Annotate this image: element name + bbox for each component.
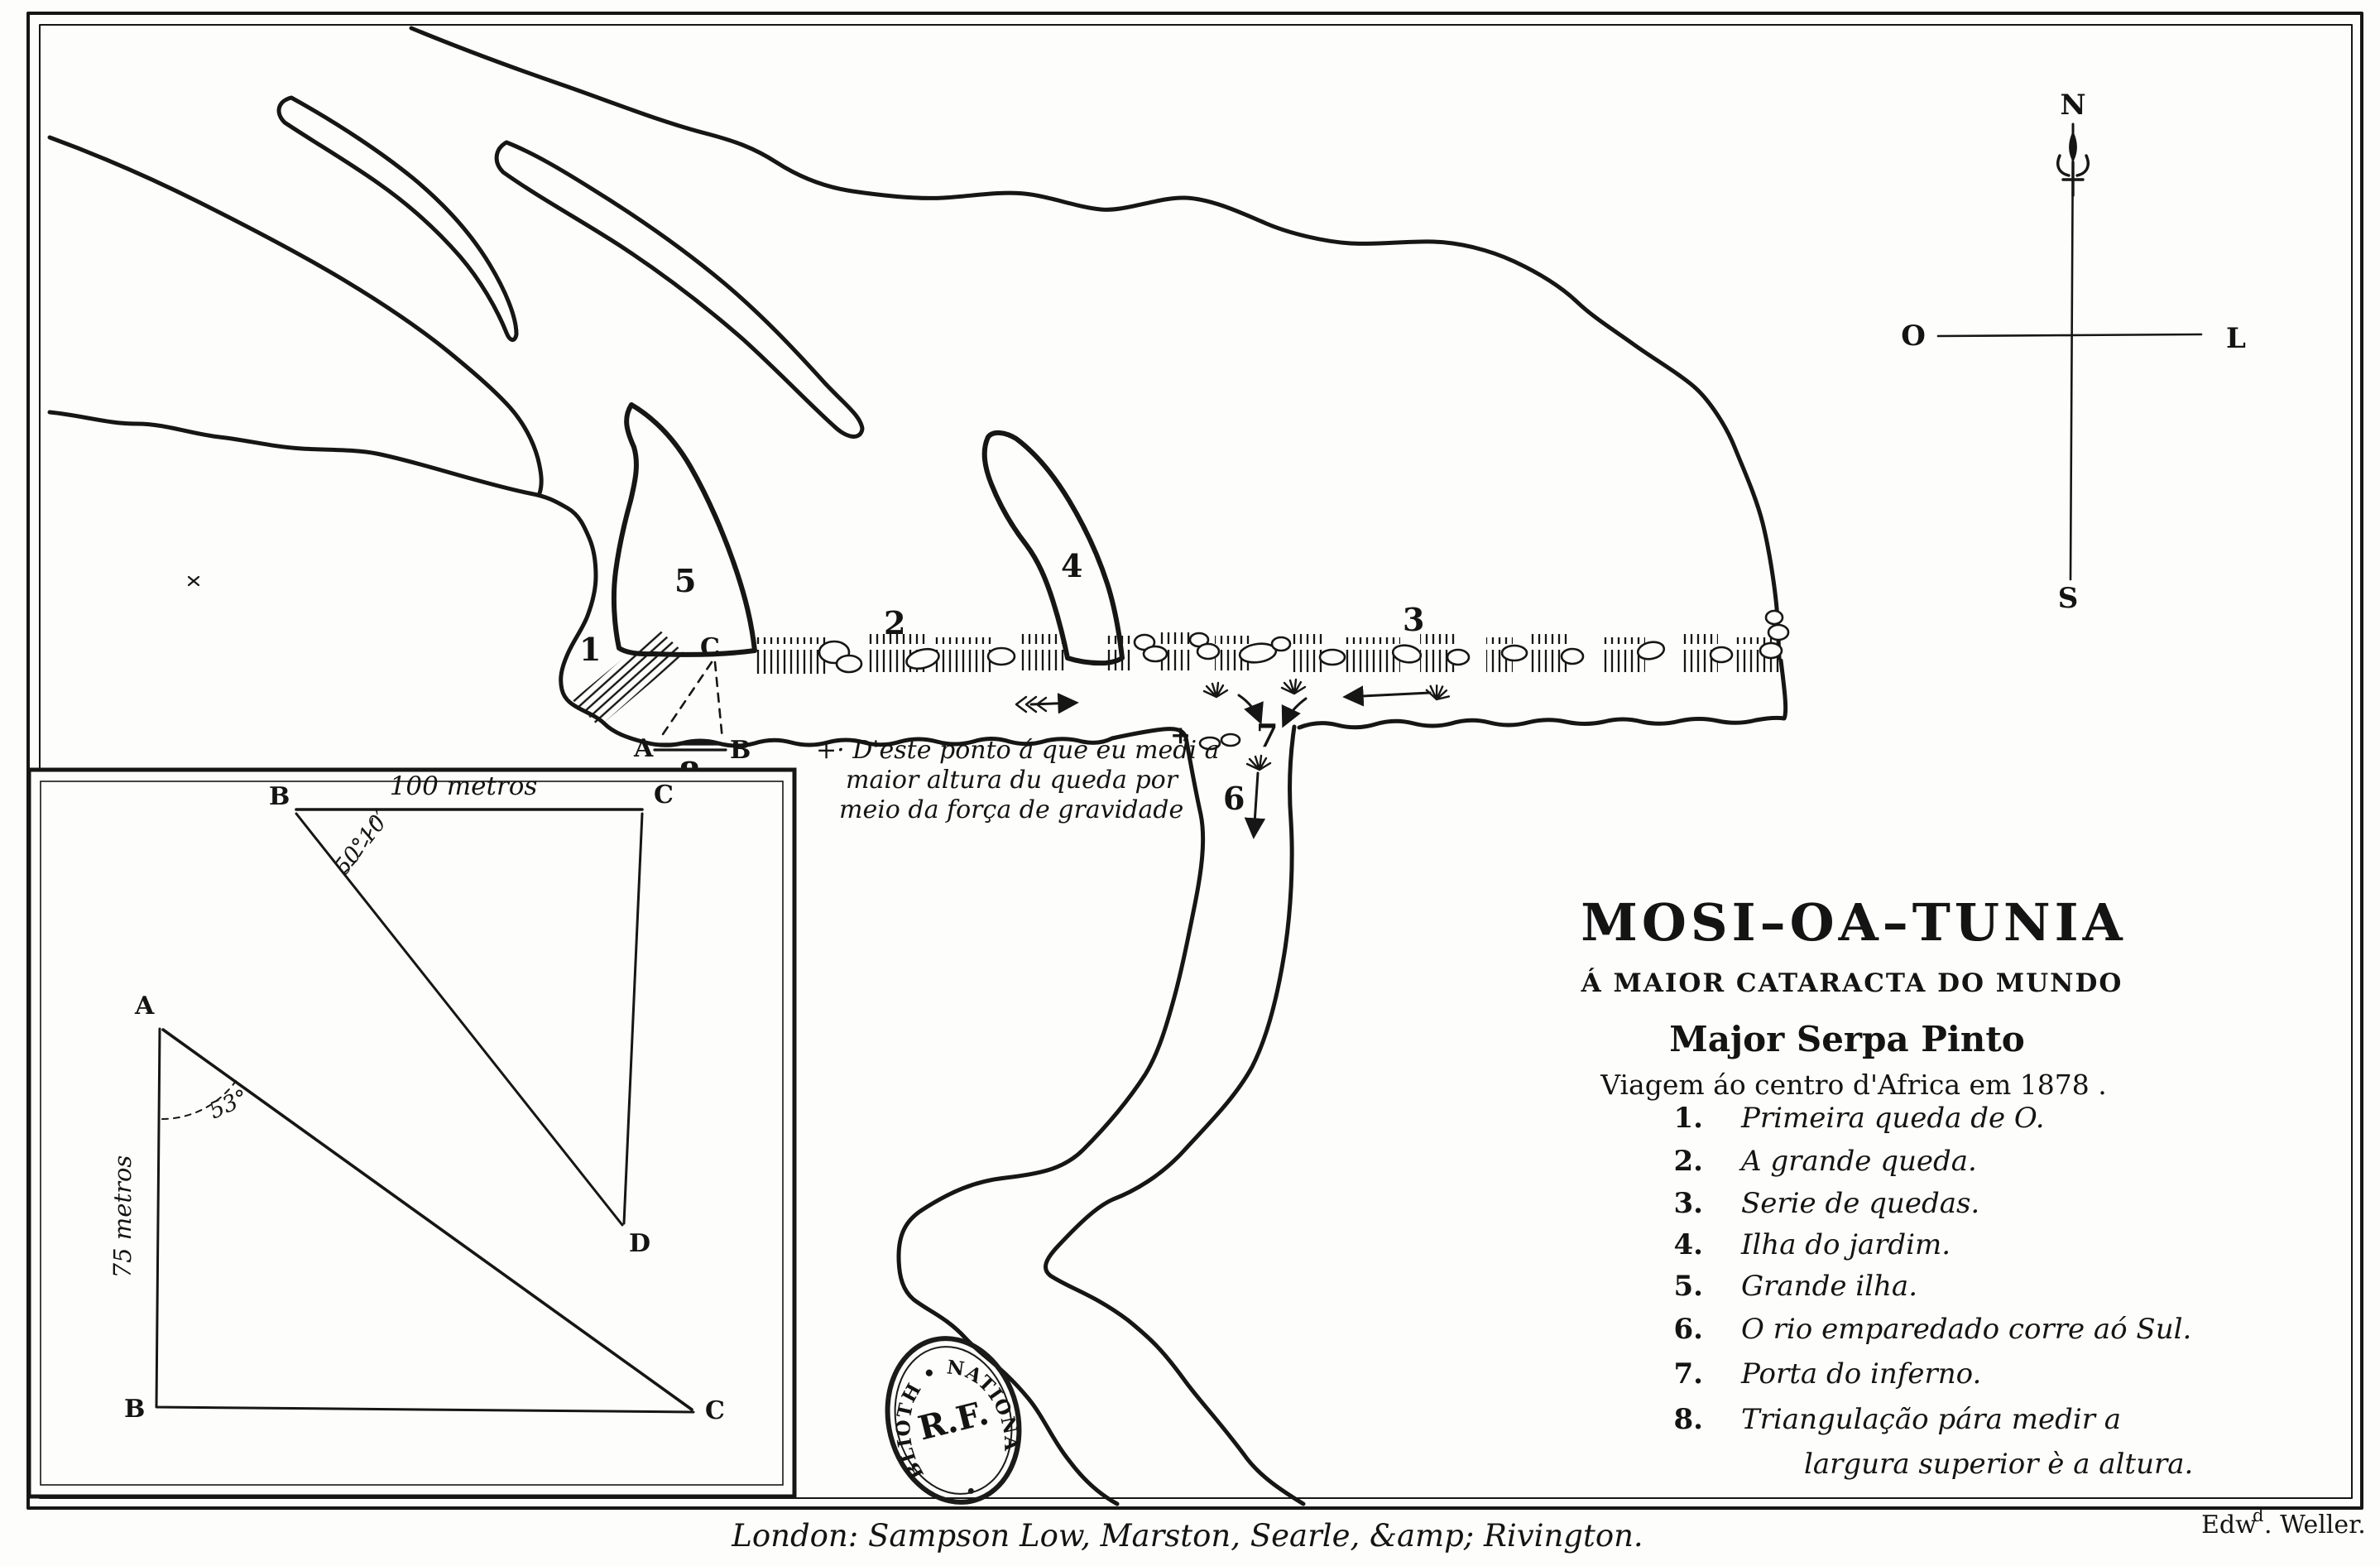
legend-num-6: 6. bbox=[1674, 1313, 1704, 1346]
stamp-center-text: R.F. bbox=[914, 1393, 992, 1448]
map-author: Major Serpa Pinto bbox=[1669, 1019, 2025, 1059]
map-title: MOSI–OA–TUNIA bbox=[1581, 892, 2127, 953]
legend-text-4: Ilha do jardim. bbox=[1740, 1228, 1951, 1261]
label-island-4: 4 bbox=[1061, 547, 1082, 584]
annotation-line1: +· D'este ponto á que eu medi a bbox=[816, 736, 1220, 765]
legend-item-8: 8. Triangulação pára medir a largura sup… bbox=[1674, 1403, 2194, 1481]
upper-long-island bbox=[497, 142, 862, 436]
legend-item-1: 1. Primeira queda de O. bbox=[1674, 1102, 2045, 1135]
legend-text-6: O rio emparedado corre aó Sul. bbox=[1741, 1313, 2191, 1346]
label-fall-1: 1 bbox=[579, 631, 601, 668]
library-stamp: BIBLIOTH • NATIONALE R.F. bbox=[871, 1324, 1036, 1516]
annotation-line3: meio da força de gravidade bbox=[839, 795, 1183, 824]
inset-point-d: D bbox=[629, 1229, 650, 1258]
legend-item-4: 4. Ilha do jardim. bbox=[1674, 1228, 1951, 1261]
small-cross-mark-icon bbox=[189, 577, 199, 585]
map-page: 1 2 3 4 5 6 7 8 A B C + +· D'este ponto … bbox=[0, 0, 2380, 1566]
inset-point-b-bottom: B bbox=[124, 1395, 145, 1424]
label-point-b: B bbox=[730, 736, 751, 765]
cataract-rocks bbox=[819, 611, 1788, 749]
gorge-east-wall bbox=[1045, 727, 1303, 1504]
legend-item-6: 6. O rio emparedado corre aó Sul. bbox=[1674, 1313, 2192, 1346]
legend-text-3: Serie de quedas. bbox=[1741, 1187, 1979, 1220]
legend-num-2: 2. bbox=[1674, 1145, 1704, 1178]
grande-ilha-island bbox=[614, 405, 755, 655]
south-flow-arrow-icon bbox=[1254, 773, 1258, 836]
inset-side-label: 75 metros bbox=[108, 1155, 137, 1279]
inset-panel: B C D A B C 100 metros 50°10′ 75 metros … bbox=[29, 770, 794, 1496]
legend-num-5: 5. bbox=[1674, 1270, 1704, 1303]
label-island-5: 5 bbox=[674, 562, 696, 599]
engraver-post: . Weller. bbox=[2264, 1511, 2366, 1540]
label-point-c: C bbox=[700, 633, 720, 662]
islands bbox=[279, 98, 1122, 663]
inset-point-a: A bbox=[134, 992, 155, 1021]
fleur-de-lis-icon bbox=[2058, 124, 2089, 195]
label-fall-3: 3 bbox=[1403, 601, 1424, 638]
map-edition: Viagem áo centro d'Africa em 1878 . bbox=[1600, 1069, 2107, 1101]
compass-o-label: O bbox=[1901, 319, 1926, 353]
legend-item-2: 2. A grande queda. bbox=[1674, 1145, 1977, 1178]
legend-num-4: 4. bbox=[1674, 1228, 1704, 1261]
lower-long-island bbox=[279, 98, 516, 340]
compass-s-label: S bbox=[2058, 582, 2079, 615]
flow-arrow-west-icon bbox=[1346, 693, 1430, 697]
legend-num-1: 1. bbox=[1674, 1102, 1704, 1135]
measure-annotation: +· D'este ponto á que eu medi a maior al… bbox=[816, 736, 1220, 824]
legend-num-3: 3. bbox=[1674, 1187, 1704, 1220]
publisher-imprint: London: Sampson Low, Marston, Searle, &a… bbox=[731, 1518, 1643, 1554]
legend-text-8: Triangulação pára medir a bbox=[1741, 1403, 2121, 1436]
legend-item-7: 7. Porta do inferno. bbox=[1674, 1357, 1982, 1391]
legend: 1. Primeira queda de O. 2. A grande qued… bbox=[1674, 1102, 2194, 1481]
annotation-line2: maior altura du queda por bbox=[846, 766, 1179, 795]
legend-text-2: A grande queda. bbox=[1739, 1145, 1977, 1178]
label-point-a: A bbox=[633, 734, 654, 763]
map-triangulation bbox=[655, 662, 726, 750]
compass-n-label: N bbox=[2060, 89, 2085, 122]
title-block: MOSI–OA–TUNIA Á MAIOR CATARACTA DO MUNDO… bbox=[1581, 892, 2127, 1101]
compass-rose: N S O L bbox=[1901, 89, 2246, 615]
inset-point-c-top: C bbox=[654, 781, 674, 809]
map-canvas: 1 2 3 4 5 6 7 8 A B C + +· D'este ponto … bbox=[0, 0, 2380, 1566]
map-subtitle: Á MAIOR CATARACTA DO MUNDO bbox=[1581, 967, 2123, 998]
inset-point-c-bottom: C bbox=[705, 1396, 725, 1425]
west-upper-bank bbox=[50, 137, 541, 493]
inset-point-b-top: B bbox=[269, 782, 290, 811]
legend-text-5: Grande ilha. bbox=[1741, 1270, 1917, 1303]
label-fall-2: 2 bbox=[884, 604, 905, 641]
label-river-6: 6 bbox=[1223, 780, 1245, 817]
legend-item-3: 3. Serie de quedas. bbox=[1674, 1187, 1980, 1220]
label-porta-7: 7 bbox=[1256, 717, 1278, 754]
legend-num-7: 7. bbox=[1674, 1357, 1704, 1391]
engraver-credit: Edw d . Weller. bbox=[2201, 1506, 2366, 1540]
gorge-inflow-arrow-right-icon bbox=[1284, 699, 1306, 725]
inset-scale-label: 100 metros bbox=[390, 771, 538, 801]
legend-text-8b: largura superior è a altura. bbox=[1804, 1448, 2193, 1481]
compass-l-label: L bbox=[2226, 322, 2246, 355]
engraver-pre: Edw bbox=[2201, 1511, 2257, 1540]
legend-text-1: Primeira queda de O. bbox=[1740, 1102, 2045, 1135]
legend-text-7: Porta do inferno. bbox=[1740, 1357, 1981, 1391]
engraver-sup: d bbox=[2253, 1506, 2263, 1525]
ilha-do-jardim-island bbox=[985, 433, 1122, 663]
legend-num-8: 8. bbox=[1674, 1403, 1704, 1436]
legend-item-5: 5. Grande ilha. bbox=[1674, 1270, 1918, 1303]
